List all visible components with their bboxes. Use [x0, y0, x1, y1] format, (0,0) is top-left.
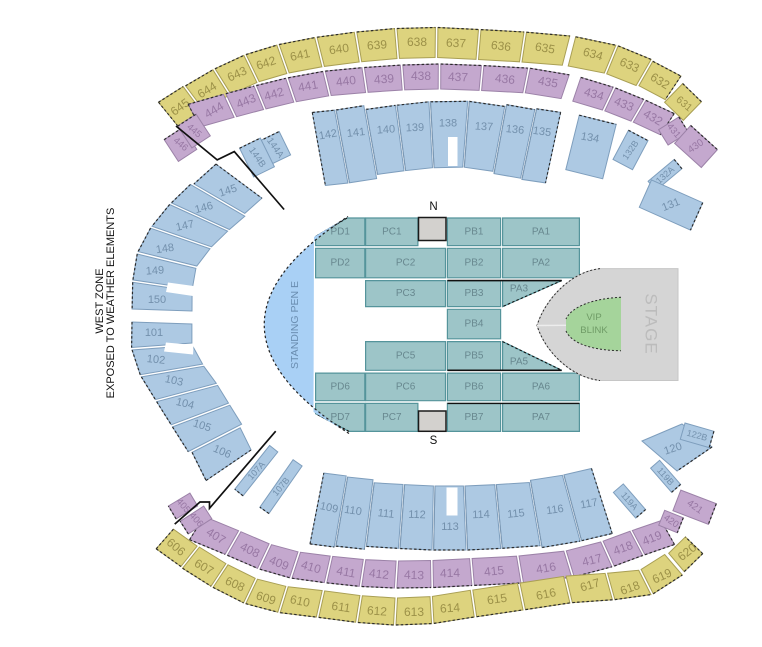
svg-text:135: 135 — [532, 125, 552, 139]
svg-text:PC1: PC1 — [382, 226, 402, 237]
svg-text:PA2: PA2 — [532, 258, 551, 269]
svg-text:PA7: PA7 — [532, 412, 551, 423]
svg-text:638: 638 — [407, 35, 427, 49]
svg-text:112: 112 — [408, 509, 426, 522]
svg-text:PC3: PC3 — [396, 288, 416, 299]
svg-text:PB6: PB6 — [465, 381, 484, 392]
svg-text:PB2: PB2 — [465, 258, 484, 269]
svg-text:PA5: PA5 — [510, 357, 529, 368]
svg-text:115: 115 — [507, 507, 526, 521]
svg-text:136: 136 — [505, 123, 525, 137]
svg-text:138: 138 — [439, 118, 457, 130]
svg-text:640: 640 — [328, 41, 350, 58]
svg-text:110: 110 — [343, 504, 362, 518]
svg-text:413: 413 — [404, 568, 425, 583]
svg-text:113: 113 — [441, 521, 459, 533]
svg-text:636: 636 — [490, 38, 512, 54]
svg-text:STANDING PEN E: STANDING PEN E — [289, 281, 301, 369]
svg-text:639: 639 — [367, 37, 388, 52]
svg-text:414: 414 — [440, 566, 461, 581]
svg-text:637: 637 — [446, 36, 467, 51]
svg-text:PA6: PA6 — [532, 381, 551, 392]
svg-text:439: 439 — [374, 71, 395, 86]
svg-text:613: 613 — [404, 605, 424, 619]
svg-text:PB7: PB7 — [465, 412, 484, 423]
svg-text:412: 412 — [368, 566, 390, 582]
svg-text:PD1: PD1 — [330, 226, 350, 237]
svg-text:114: 114 — [472, 509, 490, 522]
svg-text:PC5: PC5 — [396, 351, 416, 362]
svg-text:141: 141 — [346, 126, 366, 140]
svg-text:PB1: PB1 — [465, 226, 484, 237]
svg-text:148: 148 — [155, 242, 175, 256]
svg-text:102: 102 — [146, 353, 166, 367]
svg-text:438: 438 — [411, 69, 431, 83]
svg-text:VIP: VIP — [586, 312, 601, 323]
svg-text:116: 116 — [545, 503, 564, 517]
svg-text:436: 436 — [494, 71, 516, 87]
svg-text:PB5: PB5 — [465, 351, 484, 362]
svg-text:PB4: PB4 — [465, 319, 484, 330]
svg-text:415: 415 — [483, 563, 505, 579]
svg-text:STAGE: STAGE — [642, 293, 661, 354]
svg-text:PC7: PC7 — [382, 412, 402, 423]
svg-text:PA3: PA3 — [510, 284, 529, 295]
svg-text:149: 149 — [145, 264, 164, 277]
svg-text:EXPOSED TO WEATHER ELEMENTS: EXPOSED TO WEATHER ELEMENTS — [105, 208, 117, 399]
svg-text:N: N — [429, 201, 437, 213]
svg-text:140: 140 — [376, 123, 395, 136]
svg-text:615: 615 — [486, 591, 508, 608]
svg-text:150: 150 — [148, 294, 166, 306]
svg-text:PD2: PD2 — [330, 258, 350, 269]
svg-text:PA1: PA1 — [532, 226, 551, 237]
svg-text:611: 611 — [331, 599, 352, 616]
svg-text:612: 612 — [367, 603, 388, 618]
svg-text:PD7: PD7 — [330, 412, 350, 423]
svg-text:614: 614 — [440, 600, 461, 615]
svg-text:139: 139 — [406, 122, 425, 135]
svg-text:101: 101 — [145, 327, 163, 339]
svg-text:BLINK: BLINK — [580, 325, 608, 336]
svg-text:PB3: PB3 — [465, 288, 484, 299]
svg-text:S: S — [430, 435, 438, 447]
svg-text:440: 440 — [335, 73, 357, 89]
svg-text:137: 137 — [475, 121, 494, 134]
svg-text:PD6: PD6 — [330, 381, 350, 392]
svg-text:111: 111 — [377, 507, 395, 521]
svg-text:437: 437 — [448, 70, 469, 85]
svg-text:PC2: PC2 — [396, 258, 416, 269]
svg-text:PC6: PC6 — [396, 381, 416, 392]
